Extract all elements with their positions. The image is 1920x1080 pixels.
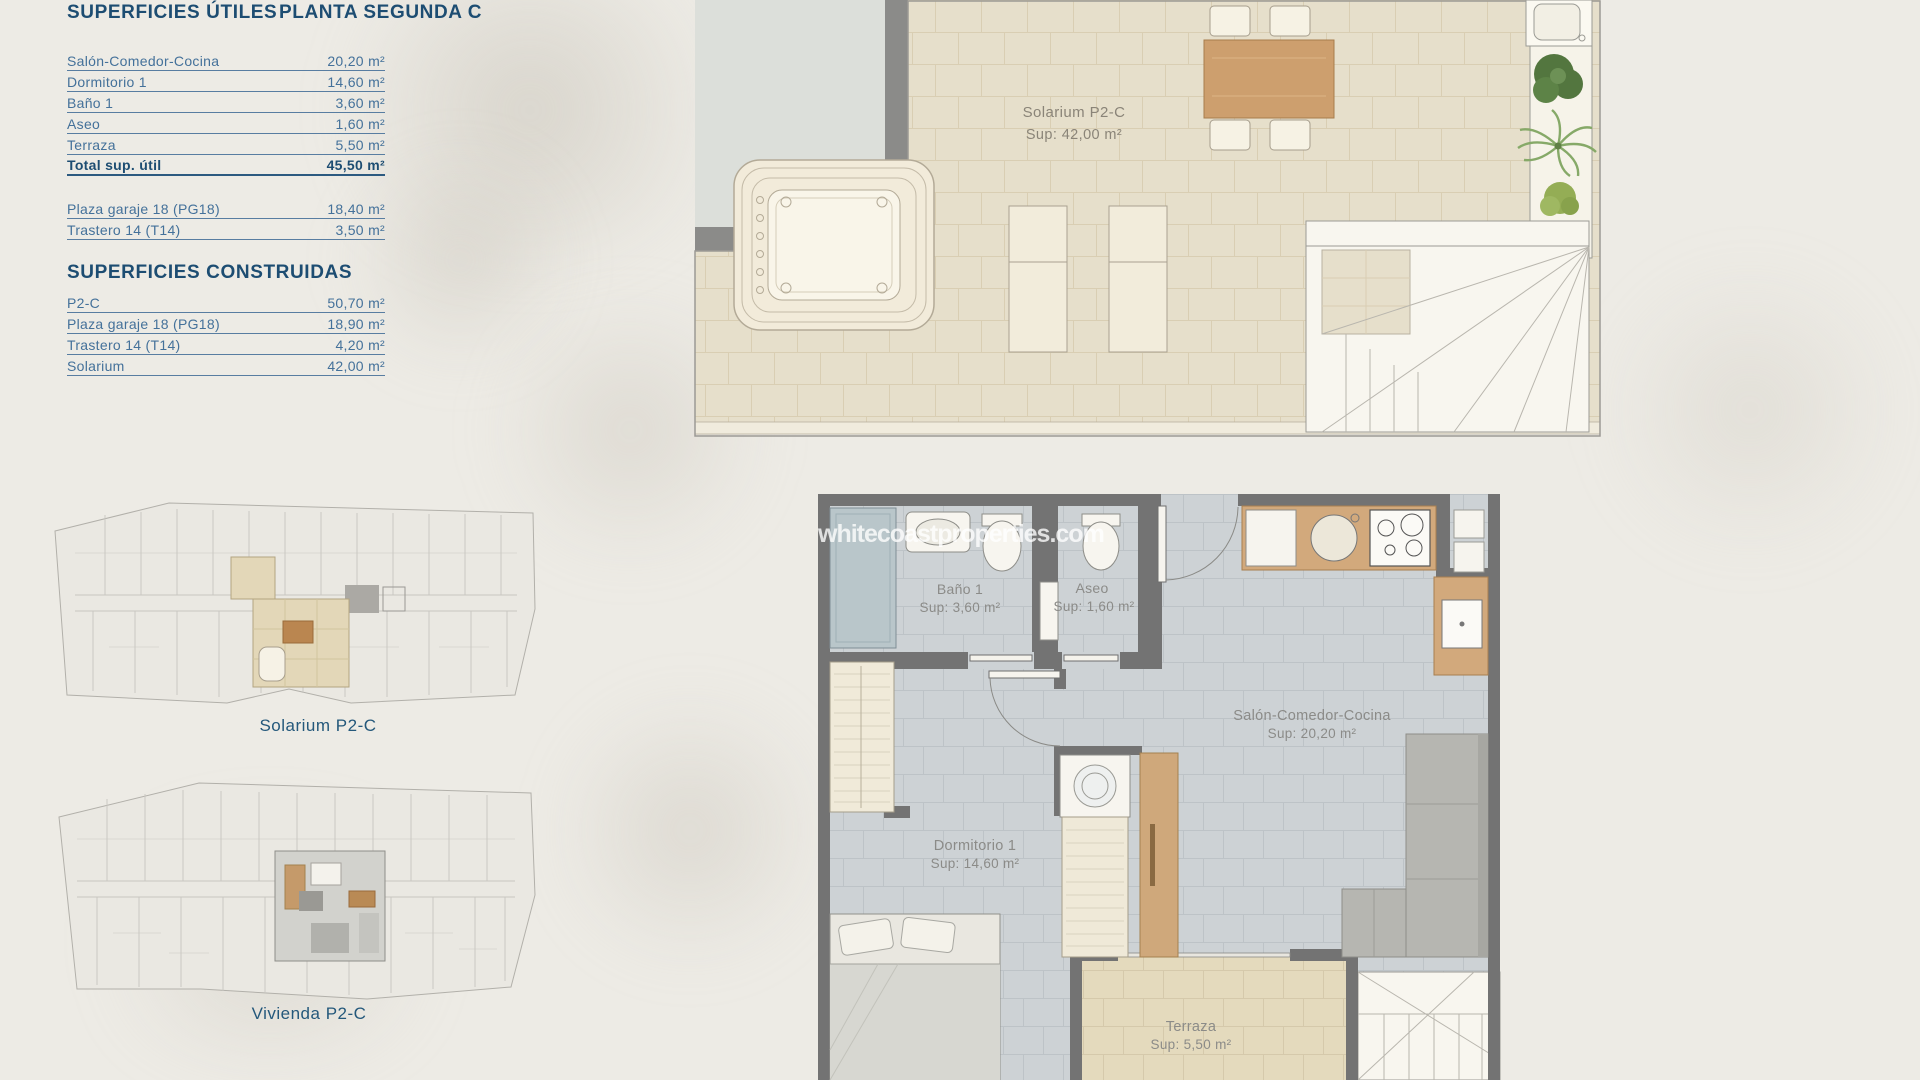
row-value: 45,50 m² <box>327 157 385 173</box>
row-value: 50,70 m² <box>327 295 385 311</box>
vivienda-overview-thumbnail <box>49 773 539 1001</box>
bano-label: Baño 1 <box>937 581 983 597</box>
row-value: 4,20 m² <box>335 337 385 353</box>
annex-rows: Plaza garaje 18 (PG18) 18,40 m² Trastero… <box>67 198 385 240</box>
row-label: Baño 1 <box>67 95 113 111</box>
row-label: Trastero 14 (T14) <box>67 222 181 238</box>
salon-label: Salón-Comedor-Cocina <box>1233 708 1391 724</box>
kitchen-sink <box>1311 515 1357 561</box>
shelving-unit <box>1062 817 1128 957</box>
row-value: 3,60 m² <box>335 95 385 111</box>
table-row: Baño 1 3,60 m² <box>67 92 385 113</box>
solarium-overview-thumbnail <box>49 497 539 711</box>
row-value: 3,50 m² <box>335 222 385 238</box>
row-label: Plaza garaje 18 (PG18) <box>67 316 220 332</box>
stair-core <box>345 585 379 613</box>
row-value: 14,60 m² <box>327 74 385 90</box>
stairwell <box>1358 972 1500 1080</box>
table-row: Dormitorio 1 14,60 m² <box>67 71 385 92</box>
row-label: Salón-Comedor-Cocina <box>67 53 219 69</box>
terraza-area: Sup: 5,50 m² <box>1151 1037 1232 1052</box>
table-row: Plaza garaje 18 (PG18) 18,40 m² <box>67 198 385 219</box>
mini-table <box>283 621 313 643</box>
table-row: Trastero 14 (T14) 4,20 m² <box>67 334 385 355</box>
watermark: whitecoastproperties.com <box>818 520 1104 549</box>
wardrobe <box>830 662 894 812</box>
chair <box>1210 6 1250 36</box>
row-label: Total sup. útil <box>67 157 161 173</box>
solarium-thumbnail-caption: Solarium P2-C <box>198 716 438 736</box>
row-label: Solarium <box>67 358 125 374</box>
mini-sofa <box>311 923 349 953</box>
row-value: 42,00 m² <box>327 358 385 374</box>
aseo-area: Sup: 1,60 m² <box>1054 599 1135 614</box>
row-value: 18,40 m² <box>327 201 385 217</box>
bano-area: Sup: 3,60 m² <box>920 600 1001 615</box>
tables-header: SUPERFICIES ÚTILES PLANTA SEGUNDA C <box>67 2 385 24</box>
table-row-total: Total sup. útil 45,50 m² <box>67 155 385 176</box>
staircase <box>1306 221 1589 432</box>
shower-tray <box>1526 0 1592 46</box>
row-value: 18,90 m² <box>327 316 385 332</box>
table-row: Salón-Comedor-Cocina 20,20 m² <box>67 50 385 71</box>
solarium-area-label: Sup: 42,00 m² <box>1026 127 1122 143</box>
salon-area: Sup: 20,20 m² <box>1268 726 1357 741</box>
row-label: Terraza <box>67 137 116 153</box>
row-label: Trastero 14 (T14) <box>67 337 181 353</box>
background-blotch <box>560 680 820 980</box>
entrance-door-leaf <box>1158 506 1166 582</box>
solarium-floor-plan: Solarium P2-C Sup: 42,00 m² <box>694 0 1606 442</box>
utiles-title: SUPERFICIES ÚTILES <box>67 2 277 23</box>
row-label: Aseo <box>67 116 100 132</box>
table-row: Aseo 1,60 m² <box>67 113 385 134</box>
surface-tables: SUPERFICIES ÚTILES PLANTA SEGUNDA C Saló… <box>67 2 385 376</box>
wardrobe-wood <box>1140 753 1178 957</box>
construidas-title: SUPERFICIES CONSTRUIDAS <box>67 262 385 284</box>
table-row: Trastero 14 (T14) 3,50 m² <box>67 219 385 240</box>
table-row: Terraza 5,50 m² <box>67 134 385 155</box>
vivienda-floor-plan: Baño 1 Sup: 3,60 m² Aseo Sup: 1,60 m² Sa… <box>814 494 1502 1080</box>
construidas-rows: P2-C 50,70 m² Plaza garaje 18 (PG18) 18,… <box>67 292 385 376</box>
floor-title: PLANTA SEGUNDA C <box>279 2 482 24</box>
row-label: P2-C <box>67 295 100 311</box>
mini-jacuzzi <box>259 647 285 681</box>
solarium-label: Solarium P2-C <box>1023 104 1126 121</box>
table-row: Solarium 42,00 m² <box>67 355 385 376</box>
terraza-label: Terraza <box>1166 1019 1217 1035</box>
vivienda-thumbnail-caption: Vivienda P2-C <box>189 1004 429 1024</box>
background-blotch <box>1600 260 1900 560</box>
terraza-floor <box>1082 957 1352 1080</box>
pillow <box>900 917 955 953</box>
aseo-door-leaf <box>1064 655 1118 661</box>
highlighted-vivienda-unit <box>275 851 385 961</box>
table-row: P2-C 50,70 m² <box>67 292 385 313</box>
utility-furniture <box>1060 753 1178 957</box>
row-label: Dormitorio 1 <box>67 74 147 90</box>
row-value: 1,60 m² <box>335 116 385 132</box>
bedroom-door-leaf <box>989 671 1060 678</box>
fridge <box>1246 510 1296 566</box>
bano-door-leaf <box>970 655 1032 661</box>
row-value: 5,50 m² <box>335 137 385 153</box>
utiles-rows: Salón-Comedor-Cocina 20,20 m² Dormitorio… <box>67 50 385 176</box>
aseo-label: Aseo <box>1075 580 1108 596</box>
chair <box>1270 6 1310 36</box>
bed <box>830 914 1000 1080</box>
row-label: Plaza garaje 18 (PG18) <box>67 201 220 217</box>
table-row: Plaza garaje 18 (PG18) 18,90 m² <box>67 313 385 334</box>
chair <box>1210 120 1250 150</box>
mini-stair <box>299 891 323 911</box>
dormitorio-label: Dormitorio 1 <box>934 838 1017 854</box>
dormitorio-area: Sup: 14,60 m² <box>931 856 1020 871</box>
row-value: 20,20 m² <box>327 53 385 69</box>
jacuzzi <box>734 160 934 330</box>
chair <box>1270 120 1310 150</box>
